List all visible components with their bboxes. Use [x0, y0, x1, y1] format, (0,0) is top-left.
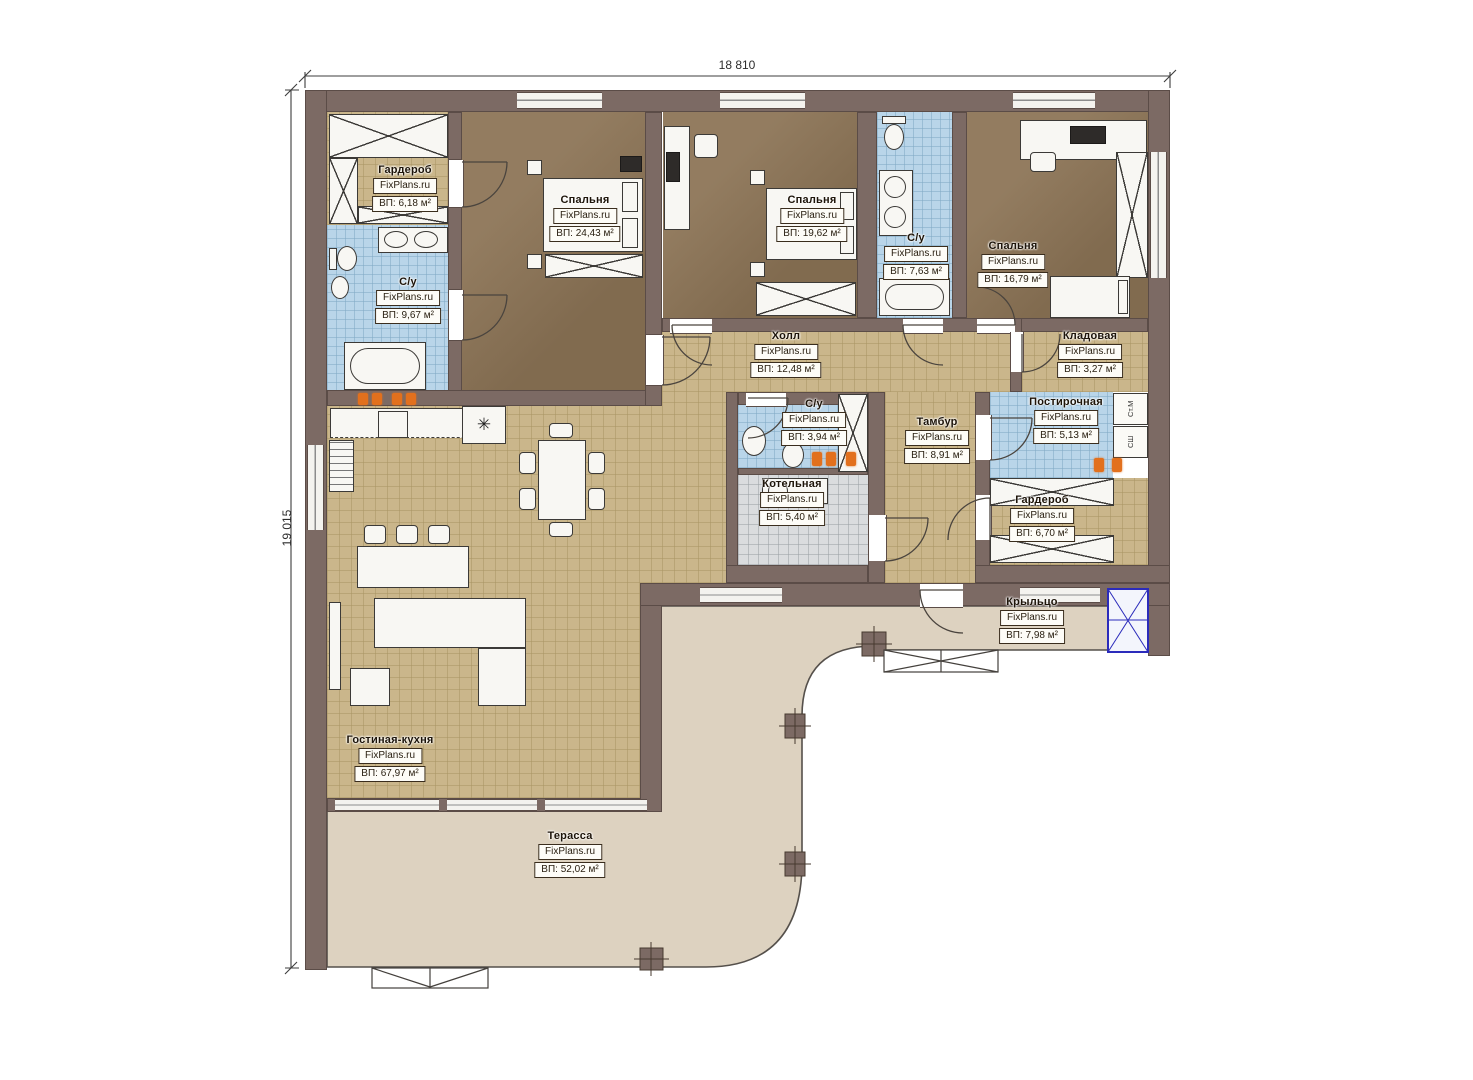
nightstand-bedroom2-b	[750, 262, 765, 277]
radiator-kotelnaya-2	[826, 452, 836, 466]
coffee-table	[350, 668, 390, 706]
toilet-su1-tank	[329, 248, 337, 270]
nightstand-bedroom1-a	[527, 160, 542, 175]
room-area: ВП: 12,48 м²	[750, 362, 821, 378]
room-label-bedroom3: Спальня FixPlans.ru ВП: 16,79 м²	[977, 240, 1048, 288]
watermark: FixPlans.ru	[1010, 508, 1074, 524]
room-name: Котельная	[759, 478, 825, 490]
room-area: ВП: 9,67 м²	[375, 308, 441, 324]
watermark: FixPlans.ru	[782, 412, 846, 428]
room-label-garderob1: Гардероб FixPlans.ru ВП: 6,18 м²	[372, 164, 438, 212]
room-name: Спальня	[977, 240, 1048, 252]
computer-bedroom2	[666, 152, 680, 182]
nightstand-bedroom1-b	[527, 254, 542, 269]
room-label-su3: С/у FixPlans.ru ВП: 3,94 м²	[781, 398, 847, 446]
watermark: FixPlans.ru	[754, 344, 818, 360]
dining-chair-1	[519, 452, 536, 474]
room-label-kladovaya: Кладовая FixPlans.ru ВП: 3,27 м²	[1057, 330, 1123, 378]
room-area: ВП: 5,13 м²	[1033, 428, 1099, 444]
room-name: С/у	[781, 398, 847, 410]
room-label-su2: С/у FixPlans.ru ВП: 7,63 м²	[883, 232, 949, 280]
terrace-columns	[634, 626, 892, 976]
radiator-postirochnaya-1	[1094, 458, 1104, 472]
room-label-kotelnaya: Котельная FixPlans.ru ВП: 5,40 м²	[759, 478, 825, 526]
door-gap-bedroom1	[645, 335, 664, 385]
room-area: ВП: 16,79 м²	[977, 272, 1048, 288]
room-area: ВП: 52,02 м²	[534, 862, 605, 878]
dining-chair-3	[588, 452, 605, 474]
dining-chair-6	[549, 522, 573, 537]
room-area: ВП: 8,91 м²	[904, 448, 970, 464]
closet-garderob1-top	[329, 114, 448, 158]
bar-stool-2	[396, 525, 418, 544]
window-patio-door	[700, 587, 782, 603]
cooker-hood-symbol: ✳	[462, 406, 506, 444]
window-kitchen	[307, 445, 324, 530]
sofa-main	[374, 598, 526, 648]
bathtub-su2	[879, 278, 950, 316]
bathtub-su1	[344, 342, 426, 390]
watermark: FixPlans.ru	[553, 208, 617, 224]
wall-su2-bedroom3	[952, 112, 967, 318]
door-gap-kotelnaya	[868, 515, 887, 561]
watermark: FixPlans.ru	[780, 208, 844, 224]
room-name: Тамбур	[904, 416, 970, 428]
room-area: ВП: 67,97 м²	[354, 766, 425, 782]
floor-corridor	[662, 392, 726, 583]
room-area: ВП: 3,27 м²	[1057, 362, 1123, 378]
wall-garderob2-bottom	[975, 565, 1170, 583]
door-gap-bedroom2	[670, 318, 712, 334]
closet-garderob1-left	[329, 158, 358, 224]
room-label-garderob2: Гардероб FixPlans.ru ВП: 6,70 м²	[1009, 494, 1075, 542]
sink-su2-b	[884, 206, 906, 228]
room-label-bedroom2: Спальня FixPlans.ru ВП: 19,62 м²	[776, 194, 847, 242]
floor-bedroom1	[462, 112, 645, 392]
wall-kotelnaya-bottom	[726, 565, 868, 583]
watermark: FixPlans.ru	[376, 290, 440, 306]
door-gap-garderob1	[448, 160, 464, 207]
room-label-terrace: Терасса FixPlans.ru ВП: 52,02 м²	[534, 830, 605, 878]
room-name: Постирочная	[1029, 396, 1103, 408]
closet-bedroom3	[1116, 152, 1148, 278]
door-gap-su3	[746, 392, 786, 407]
toilet-su2-bowl	[884, 124, 904, 150]
pillow-bedroom1-a	[622, 182, 638, 212]
dimension-width-label: 18 810	[719, 58, 756, 72]
stove-hob	[378, 411, 408, 438]
watermark: FixPlans.ru	[905, 430, 969, 446]
room-name: Спальня	[549, 194, 620, 206]
watermark: FixPlans.ru	[538, 844, 602, 860]
sink-su1-left	[384, 231, 408, 248]
room-label-livingkitchen: Гостиная-кухня FixPlans.ru ВП: 67,97 м²	[346, 734, 433, 782]
wall-bedroom2-su2	[857, 112, 877, 318]
window-living-1	[335, 799, 439, 811]
wall-bedroom1-right-stub	[645, 385, 662, 406]
window-living-3	[545, 799, 647, 811]
watermark: FixPlans.ru	[1000, 610, 1064, 626]
room-name: Гардероб	[1009, 494, 1075, 506]
window-bedroom3	[1150, 152, 1167, 278]
room-name: С/у	[883, 232, 949, 244]
watermark: FixPlans.ru	[884, 246, 948, 262]
door-gap-kladovaya	[1010, 332, 1024, 372]
room-label-bedroom1: Спальня FixPlans.ru ВП: 24,43 м²	[549, 194, 620, 242]
radiator-kotelnaya-1	[812, 452, 822, 466]
bar-stool-1	[364, 525, 386, 544]
tv-stand-living	[329, 602, 341, 690]
room-name: Гостиная-кухня	[346, 734, 433, 746]
wall-living-right	[640, 583, 662, 812]
nightstand-bedroom2-a	[750, 170, 765, 185]
pillow-bedroom3	[1118, 280, 1128, 314]
room-area: ВП: 6,18 м²	[372, 196, 438, 212]
sink-su2-a	[884, 176, 906, 198]
watermark: FixPlans.ru	[760, 492, 824, 508]
room-name: С/у	[375, 276, 441, 288]
dresser-bedroom1	[545, 254, 643, 278]
drying-cabinet-label: СШ	[1113, 426, 1148, 458]
radiator-kotelnaya-3	[846, 452, 856, 466]
dimension-height-label: 19 015	[280, 510, 294, 547]
wall-suite-divider-a	[448, 112, 462, 160]
chair-bedroom3	[1030, 152, 1056, 172]
wall-bedroom1-right	[645, 112, 662, 335]
window-top-1	[517, 92, 602, 109]
door-gap-entrance	[920, 583, 963, 608]
bidet-su1	[331, 276, 349, 299]
radiator-kitchen-3	[392, 393, 402, 405]
washing-machine-label: Ст.М	[1113, 393, 1148, 425]
radiator-kitchen-2	[372, 393, 382, 405]
watermark: FixPlans.ru	[373, 178, 437, 194]
dining-chair-2	[519, 488, 536, 510]
wall-corridor-right	[726, 392, 738, 575]
room-area: ВП: 6,70 м²	[1009, 526, 1075, 542]
room-label-hall: Холл FixPlans.ru ВП: 12,48 м²	[750, 330, 821, 378]
sink-su1-right	[414, 231, 438, 248]
printer-bedroom3	[1070, 126, 1106, 144]
sink-su3	[742, 426, 766, 456]
room-area: ВП: 5,40 м²	[759, 510, 825, 526]
room-name: Спальня	[776, 194, 847, 206]
radiator-postirochnaya-2	[1112, 458, 1122, 472]
dining-table	[538, 440, 586, 520]
kitchen-island	[357, 546, 469, 588]
floor-plan-canvas: Ст.М СШ ✳	[0, 0, 1473, 1080]
room-label-su1: С/у FixPlans.ru ВП: 9,67 м²	[375, 276, 441, 324]
window-living-2	[447, 799, 537, 811]
radiator-kitchen-1	[358, 393, 368, 405]
window-top-2	[720, 92, 805, 109]
pillow-bedroom1-b	[622, 218, 638, 248]
door-gap-su2	[903, 318, 943, 334]
fridge	[329, 440, 354, 492]
wall-suite-divider-c	[448, 340, 462, 392]
closet-bedroom2	[756, 282, 856, 316]
toilet-su1-bowl	[337, 246, 357, 271]
radiator-kitchen-4	[406, 393, 416, 405]
room-name: Холл	[750, 330, 821, 342]
room-area: ВП: 7,63 м²	[883, 264, 949, 280]
dining-chair-5	[549, 423, 573, 438]
room-label-postirochnaya: Постирочная FixPlans.ru ВП: 5,13 м²	[1029, 396, 1103, 444]
watermark: FixPlans.ru	[1034, 410, 1098, 426]
toilet-su2-tank	[882, 116, 906, 124]
tv-bedroom1	[620, 156, 642, 172]
room-label-tambur: Тамбур FixPlans.ru ВП: 8,91 м²	[904, 416, 970, 464]
bar-stool-3	[428, 525, 450, 544]
wall-suite-divider-b	[448, 207, 462, 290]
room-area: ВП: 7,98 м²	[999, 628, 1065, 644]
room-name: Кладовая	[1057, 330, 1123, 342]
watermark: FixPlans.ru	[1058, 344, 1122, 360]
room-label-krylco: Крыльцо FixPlans.ru ВП: 7,98 м²	[999, 596, 1065, 644]
room-name: Терасса	[534, 830, 605, 842]
room-area: ВП: 3,94 м²	[781, 430, 847, 446]
door-gap-su1	[448, 290, 464, 340]
watermark: FixPlans.ru	[358, 748, 422, 764]
dining-chair-4	[588, 488, 605, 510]
room-area: ВП: 19,62 м²	[776, 226, 847, 242]
room-name: Крыльцо	[999, 596, 1065, 608]
door-gap-postirochnaya	[975, 415, 992, 460]
sofa-chaise	[478, 648, 526, 706]
chair-bedroom2	[694, 134, 718, 158]
watermark: FixPlans.ru	[981, 254, 1045, 270]
room-area: ВП: 24,43 м²	[549, 226, 620, 242]
window-top-3	[1013, 92, 1095, 109]
wall-left	[305, 90, 327, 970]
room-name: Гардероб	[372, 164, 438, 176]
